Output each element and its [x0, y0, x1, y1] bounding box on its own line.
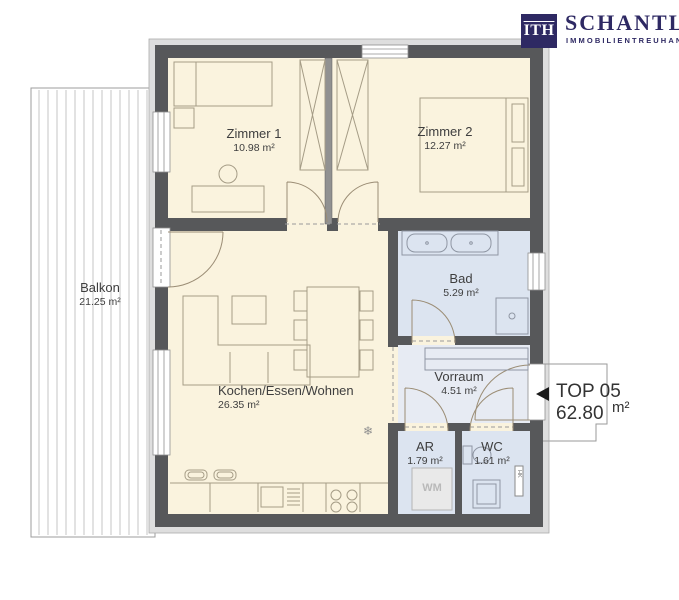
room-label-kochen: Kochen/Essen/Wohnen 26.35 m² [218, 383, 354, 412]
room-area: 12.27 m² [418, 140, 473, 153]
room-name: WC [474, 439, 510, 455]
unit-area-value: 62.80 [556, 403, 604, 425]
room-name: Zimmer 1 [227, 126, 282, 142]
brand-tagline: IMMOBILIENTREUHAND [566, 36, 679, 45]
room-area: 5.29 m² [443, 287, 479, 300]
room-name: Vorraum [434, 369, 483, 385]
room-area: 1.61 m² [474, 455, 510, 468]
brand-name: SCHANTL [565, 10, 679, 36]
balcony-deck [31, 88, 155, 537]
fridge-snowflake-icon: ❄ [363, 424, 373, 438]
room-label-bad: Bad 5.29 m² [443, 271, 479, 300]
room-area: 10.98 m² [227, 142, 282, 155]
floor-plan-page: Zimmer 1 10.98 m² Zimmer 2 12.27 m² Bad … [0, 0, 679, 600]
ith-logo: ITH [521, 14, 557, 48]
room-label-vorraum: Vorraum 4.51 m² [434, 369, 483, 398]
room-name: Kochen/Essen/Wohnen [218, 383, 354, 399]
washing-machine-label: WM [422, 482, 442, 494]
room-area: 4.51 m² [434, 385, 483, 398]
room-name: Balkon [79, 280, 120, 296]
room-label-zimmer1: Zimmer 1 10.98 m² [227, 126, 282, 155]
room-label-wc: WC 1.61 m² [474, 439, 510, 468]
ith-logo-mark: ITH [524, 22, 555, 40]
room-area: 26.35 m² [218, 399, 354, 412]
unit-area-unit: m² [612, 399, 630, 416]
radiator-label: HK [516, 470, 522, 478]
room-label-ar: AR 1.79 m² [407, 439, 443, 468]
room-label-zimmer2: Zimmer 2 12.27 m² [418, 124, 473, 153]
room-name: Zimmer 2 [418, 124, 473, 140]
room-area: 1.79 m² [407, 455, 443, 468]
room-area: 21.25 m² [79, 296, 120, 309]
room-name: AR [407, 439, 443, 455]
room-label-balkon: Balkon 21.25 m² [79, 280, 120, 309]
room-name: Bad [443, 271, 479, 287]
